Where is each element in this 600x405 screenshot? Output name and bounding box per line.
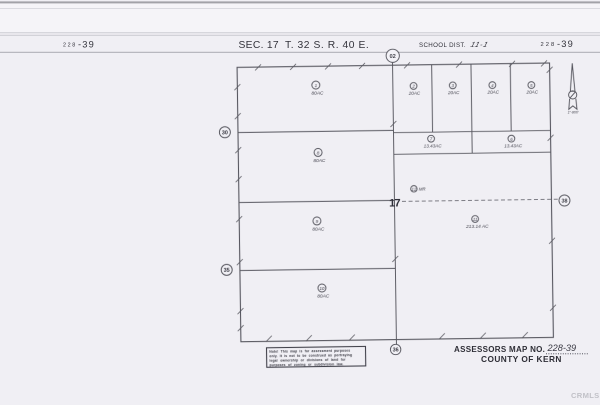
svg-text:SCHOOL DIST.: SCHOOL DIST. — [419, 42, 466, 49]
svg-text:213.14 AC: 213.14 AC — [465, 224, 489, 230]
svg-text:ASSESSORS MAP NO.: ASSESSORS MAP NO. — [454, 345, 545, 354]
svg-text:02: 02 — [390, 54, 396, 60]
svg-text:-39: -39 — [557, 39, 574, 49]
svg-text:COUNTY OF KERN: COUNTY OF KERN — [481, 354, 562, 364]
svg-text:-39: -39 — [78, 39, 95, 49]
svg-text:80AC: 80AC — [317, 294, 330, 300]
svg-text:20AC: 20AC — [525, 90, 538, 95]
svg-text:2: 2 — [411, 84, 415, 89]
svg-text:CRMLS: CRMLS — [571, 391, 600, 400]
svg-text:20AC: 20AC — [408, 90, 421, 95]
svg-text:11: 11 — [473, 217, 478, 222]
svg-text:20AC: 20AC — [486, 90, 499, 95]
svg-text:11-1: 11-1 — [469, 40, 489, 49]
svg-text:35: 35 — [224, 268, 230, 274]
svg-text:20AC: 20AC — [447, 90, 460, 95]
svg-text:13.43AC: 13.43AC — [424, 143, 443, 148]
svg-text:228: 228 — [541, 42, 557, 48]
svg-text:36: 36 — [393, 347, 399, 353]
svg-text:13.43AC: 13.43AC — [504, 143, 523, 148]
svg-text:SEC. 17: SEC. 17 — [239, 40, 279, 51]
svg-text:30: 30 — [222, 130, 228, 136]
svg-text:MR: MR — [419, 187, 427, 192]
svg-text:228-39: 228-39 — [547, 343, 577, 353]
svg-text:80AC: 80AC — [311, 91, 324, 97]
svg-text:80AC: 80AC — [313, 158, 326, 164]
svg-text:1"-800': 1"-800' — [568, 110, 580, 114]
svg-text:T. 32 S. R. 40 E.: T. 32 S. R. 40 E. — [285, 40, 369, 51]
svg-text:12: 12 — [411, 187, 417, 192]
svg-text:228: 228 — [63, 43, 77, 49]
svg-text:38: 38 — [561, 198, 567, 204]
svg-text:10: 10 — [319, 286, 325, 291]
svg-text:17: 17 — [389, 197, 400, 209]
svg-text:80AC: 80AC — [312, 226, 325, 232]
